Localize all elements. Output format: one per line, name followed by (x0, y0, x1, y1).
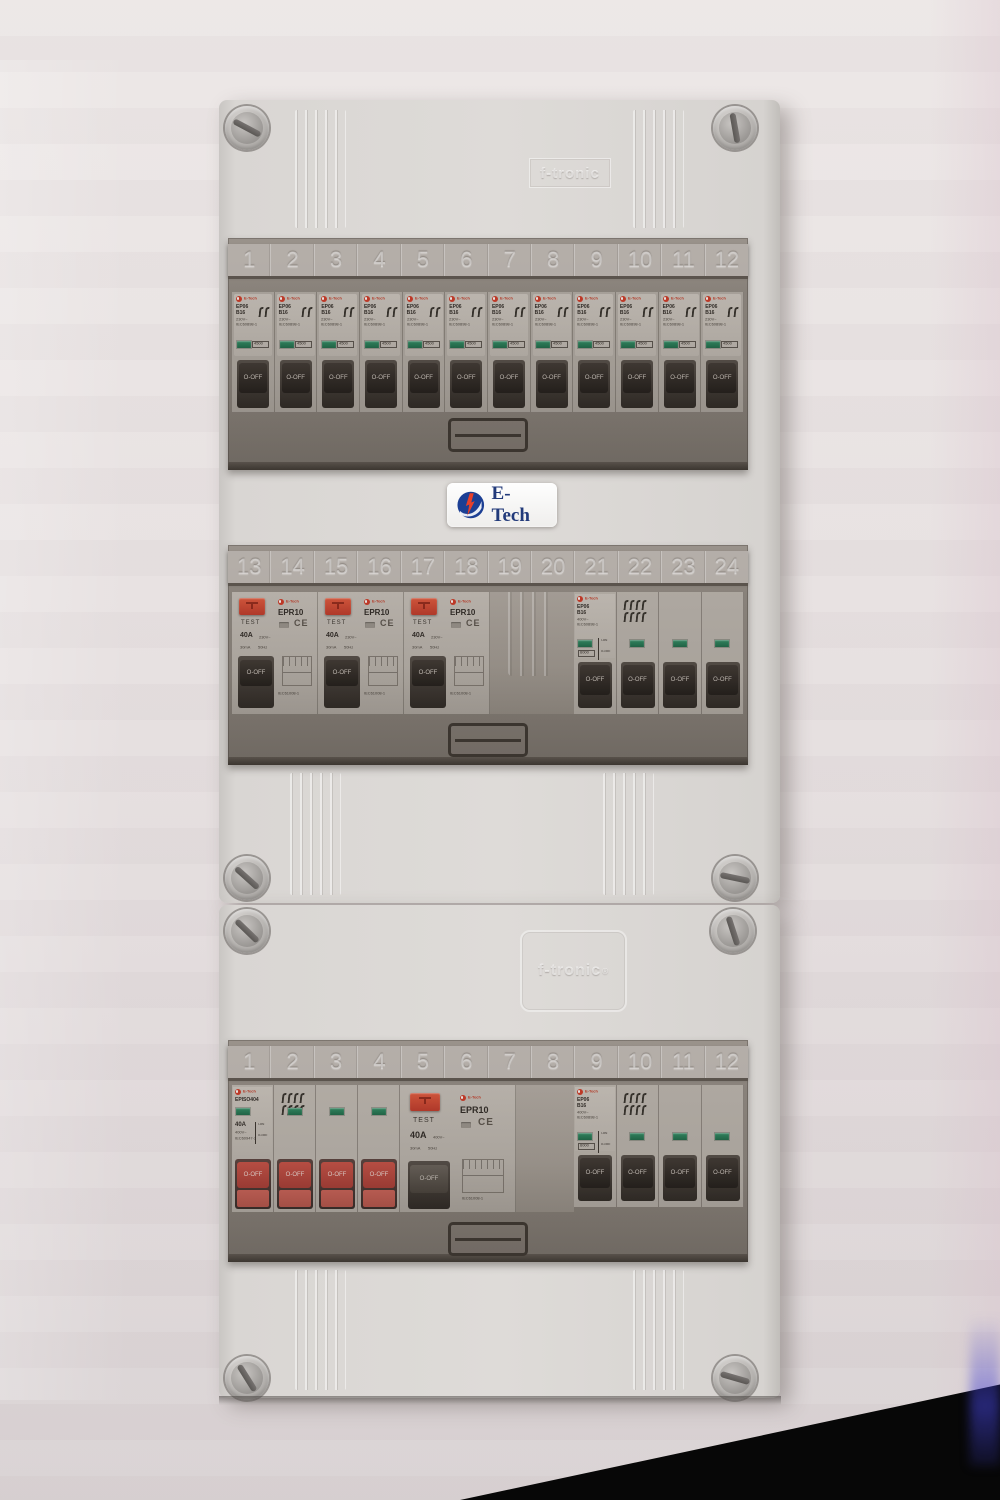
breaking-capacity-label: 6000 (580, 651, 589, 655)
brand-mark: E-Tech (364, 296, 392, 302)
curve-hook-icon (301, 307, 306, 317)
brand-mark: E-Tech (450, 599, 478, 605)
on-label: I-ON (258, 1123, 264, 1126)
wiring-diagram (462, 1159, 504, 1193)
curve-hook-icon (514, 307, 519, 317)
isolator-toggle[interactable]: O-OFF (363, 1162, 395, 1188)
breaking-capacity-box: 4500 (380, 341, 397, 348)
curve-hook-icon (563, 307, 568, 317)
brand-label: E-Tech (372, 297, 385, 301)
breaking-capacity-label: 4500 (254, 342, 263, 346)
rating-label: B16 (364, 311, 373, 316)
mcb-ep06-4p: E-TechEP06B16400V~IEC60898-16000I-ONO-OF… (574, 592, 744, 714)
standard-label: IEC60898-1 (449, 323, 470, 327)
sensitivity-label: 30mA (410, 1147, 420, 1151)
rcd-epr10: TESTE-TechEPR10CE40A230V~30mA50HzO-OFFIE… (404, 592, 490, 714)
standard-label: IEC60898-1 (577, 1116, 598, 1120)
breaking-capacity-box: 4500 (295, 341, 312, 348)
consumer-unit-lower: f-tronic® 123456789101112 E-TechEPISO404… (219, 905, 780, 1398)
curve-hook-icon (281, 1105, 286, 1115)
isolator-toggle[interactable]: O-OFF (279, 1162, 311, 1188)
standard-label: IEC60898-1 (577, 323, 598, 327)
breaking-capacity-label: 4500 (297, 342, 306, 346)
breaker-toggle[interactable]: O-OFF (282, 363, 310, 393)
test-t-icon (246, 602, 258, 610)
cover-latch[interactable] (448, 418, 528, 452)
slot-number: 3 (314, 244, 357, 276)
rcd-toggle[interactable]: O-OFF (326, 660, 358, 686)
ce-mark: CE (380, 619, 395, 628)
breaking-capacity-box: 4500 (337, 341, 354, 348)
breaking-capacity-box: 4500 (252, 341, 269, 348)
pole-4: O-OFF (702, 592, 745, 714)
cover-edge (228, 462, 748, 470)
mcb-ep06-1p: E-TechEP06B16230V~IEC60898-14500O-OFF (659, 292, 702, 412)
vent-ribs (633, 1270, 684, 1390)
status-indicator-window (578, 1133, 592, 1140)
curve-hook-icon (429, 307, 434, 317)
sensitivity-label: 30mA (326, 646, 336, 650)
status-indicator-window (673, 640, 687, 647)
breaker-toggle[interactable]: O-OFF (580, 1158, 610, 1188)
rail-shadow (228, 276, 748, 279)
test-t-icon (332, 602, 344, 610)
e-tech-logo-icon (460, 1095, 466, 1101)
mcb-label-area: E-TechEP06B16230V~IEC60898-14500 (362, 294, 400, 356)
slot-number: 12 (705, 1046, 748, 1078)
sensitivity-label: 30mA (412, 646, 422, 650)
voltage-label: 230V~ (577, 318, 589, 322)
brand-mark: E-Tech (620, 296, 648, 302)
brand-label: E-Tech (415, 297, 428, 301)
standard-label: IEC61008-1 (364, 692, 385, 696)
breaker-toggle[interactable]: O-OFF (452, 363, 480, 393)
slot-number: 6 (444, 244, 487, 276)
curve-hook-icon (636, 1093, 641, 1103)
status-indicator-window (706, 341, 720, 348)
on-label: I-ON (601, 639, 607, 642)
on-off-indicator: I-ONO-OFF (255, 1122, 271, 1144)
trip-curve-marks (472, 307, 482, 317)
brand-label: E-Tech (457, 297, 470, 301)
breaker-toggle[interactable]: O-OFF (239, 363, 267, 393)
mcb-ep06-1p: E-TechEP06B16230V~IEC60898-14500O-OFF (616, 292, 659, 412)
enclosure-top-panel: f-tronic® (219, 905, 780, 1040)
slot-number: 15 (314, 551, 357, 583)
e-tech-logo-icon (577, 296, 583, 302)
breaker-toggle[interactable]: O-OFF (623, 363, 651, 393)
curve-hook-icon (630, 1093, 635, 1103)
curve-hook-icon (557, 307, 562, 317)
rating-label: 40A (326, 632, 339, 639)
screw (225, 909, 269, 953)
rating-label: B16 (492, 311, 501, 316)
blanking-module (516, 1085, 574, 1212)
mcb-ep06-1p: E-TechEP06B16230V~IEC60898-14500O-OFF (317, 292, 360, 412)
brand-mark: E-Tech (535, 296, 563, 302)
breaker-toggle[interactable]: O-OFF (665, 665, 695, 695)
indicator-window (461, 1122, 471, 1128)
consumer-unit-upper: f-tronic 123456789101112 E-TechEP06B1623… (219, 100, 780, 903)
breaking-capacity-box: 6000 (578, 1143, 595, 1150)
rating-label: B16 (620, 311, 629, 316)
mcb-label-area: E-TechEP06B16230V~IEC60898-14500 (319, 294, 357, 356)
model-label: EPR10 (450, 609, 475, 617)
brand-label: E-Tech (329, 297, 342, 301)
pole-4: O-OFF (702, 1085, 745, 1207)
mcb-label-area: E-TechEP06B16230V~IEC60898-14500 (533, 294, 571, 356)
test-button[interactable] (410, 1093, 440, 1111)
status-indicator-window (664, 341, 678, 348)
status-indicator-window (450, 341, 464, 348)
curve-hook-icon (630, 612, 635, 622)
brand-mark: E-Tech (321, 296, 349, 302)
status-indicator-window (237, 341, 251, 348)
brand-mark: E-Tech (364, 599, 392, 605)
breaker-toggle[interactable]: O-OFF (580, 665, 610, 695)
pole-3: O-OFF (659, 592, 702, 714)
cover-latch[interactable] (448, 723, 528, 757)
rcd-epr10: TESTE-TechEPR10CE40A230V~30mA50HzO-OFFIE… (232, 592, 318, 714)
wiring-diagram (368, 656, 398, 686)
slot-number: 22 (618, 551, 661, 583)
mcb-label-area: E-TechEP06B16230V~IEC60898-14500 (703, 294, 741, 356)
breaker-row-window-1: 123456789101112 E-TechEP06B16230V~IEC608… (228, 238, 748, 470)
slot-number: 21 (574, 551, 617, 583)
curve-hook-icon (734, 307, 739, 317)
mcb-ep06-1p: E-TechEP06B16230V~IEC60898-14500O-OFF (445, 292, 488, 412)
isolator-toggle-foot (237, 1190, 269, 1207)
breaking-capacity-box: 4500 (636, 341, 653, 348)
brand-label: E-Tech (287, 297, 300, 301)
voltage-label: 230V~ (663, 318, 675, 322)
brand-mark: E-Tech (279, 296, 307, 302)
voltage-label: 230V~ (345, 636, 357, 640)
voltage-label: 230V~ (279, 318, 291, 322)
standard-label: IEC60898-1 (577, 623, 598, 627)
mcb-label-area: E-TechEP06B16230V~IEC60898-14500 (405, 294, 443, 356)
brand-mark: E-Tech (236, 296, 264, 302)
voltage-label: 400V~ (577, 618, 589, 622)
curve-hook-icon (606, 307, 611, 317)
trip-curve-marks (624, 1093, 650, 1115)
curve-hook-icon (281, 1093, 286, 1103)
mcb-label-area: E-TechEP06B16230V~IEC60898-14500 (661, 294, 699, 356)
slot-number: 8 (531, 244, 574, 276)
indicator-window (365, 622, 375, 628)
rating-label: 40A (240, 632, 253, 639)
breaker-toggle[interactable]: O-OFF (580, 363, 608, 393)
slot-number-strip: 131415161718192021222324 (228, 551, 748, 583)
slot-number: 17 (401, 551, 444, 583)
trip-curve-marks (387, 307, 397, 317)
status-indicator-window (715, 640, 729, 647)
breaker-toggle[interactable]: O-OFF (410, 363, 438, 393)
e-tech-logo-icon (620, 296, 626, 302)
e-tech-logo-icon (450, 599, 456, 605)
curve-hook-icon (264, 307, 269, 317)
wiring-diagram (282, 656, 312, 686)
status-indicator-window (280, 341, 294, 348)
rcd-toggle[interactable]: O-OFF (240, 660, 272, 686)
screw (713, 106, 757, 150)
voltage-label: 230V~ (492, 318, 504, 322)
curve-hook-icon (520, 307, 525, 317)
mcb-label-area: E-TechEP06B16230V~IEC60898-14500 (575, 294, 613, 356)
breaker-toggle[interactable]: O-OFF (538, 363, 566, 393)
mcb-ep06-4p: E-TechEP06B16400V~IEC60898-16000I-ONO-OF… (574, 1085, 744, 1207)
screw (225, 106, 269, 150)
standard-label: IEC60898-1 (705, 323, 726, 327)
off-label: O-OFF (601, 650, 610, 653)
voltage-label: 400V~ (433, 1136, 445, 1140)
isolator-toggle[interactable]: O-OFF (321, 1162, 353, 1188)
pole-1: E-TechEP06B16400V~IEC60898-16000I-ONO-OF… (574, 592, 617, 714)
breaking-capacity-label: 4500 (723, 342, 732, 346)
voltage-label: 230V~ (535, 318, 547, 322)
status-indicator-window (621, 341, 635, 348)
slot-number: 7 (488, 1046, 531, 1078)
curve-hook-icon (642, 600, 647, 610)
breaking-capacity-label: 4500 (595, 342, 604, 346)
curve-hook-icon (691, 307, 696, 317)
e-tech-logo-icon (321, 296, 327, 302)
off-label: O-OFF (258, 1134, 267, 1137)
background-glow (0, 60, 130, 1400)
brand-mark: E-Tech (577, 596, 605, 602)
breaking-capacity-box: 4500 (593, 341, 610, 348)
standard-label: IEC60898-1 (321, 323, 342, 327)
slot-number: 12 (705, 244, 748, 276)
voltage-label: 230V~ (620, 318, 632, 322)
rcd-epr10: TESTE-TechEPR10CE40A400V~30mA50HzO-OFFIE… (400, 1085, 516, 1212)
trip-curve-marks (259, 307, 269, 317)
rcd-toggle[interactable]: O-OFF (410, 1165, 448, 1193)
on-off-indicator: I-ONO-OFF (598, 1131, 614, 1153)
status-indicator-window (578, 341, 592, 348)
test-button[interactable] (325, 598, 351, 615)
vent-ribs (290, 773, 341, 895)
test-label: TEST (413, 620, 432, 626)
slot-number: 23 (661, 551, 704, 583)
rating-label: B16 (705, 311, 714, 316)
curve-hook-icon (624, 1105, 629, 1115)
curve-hook-icon (642, 1105, 647, 1115)
test-label: TEST (241, 620, 260, 626)
breaker-toggle[interactable]: O-OFF (495, 363, 523, 393)
vent-ribs (295, 110, 346, 228)
cast-shadow (219, 1396, 781, 1405)
mcb-label-area: E-TechEP06B16400V~IEC60898-16000I-ONO-OF… (575, 594, 615, 658)
slot-number: 9 (574, 1046, 617, 1078)
curve-hook-icon (630, 1105, 635, 1115)
breaking-capacity-label: 4500 (339, 342, 348, 346)
e-tech-logo-icon (407, 296, 413, 302)
breaking-capacity-label: 4500 (510, 342, 519, 346)
slot-number: 2 (270, 244, 313, 276)
breaker-toggle[interactable]: O-OFF (623, 665, 653, 695)
rating-label: B16 (535, 311, 544, 316)
breaker-toggle[interactable]: O-OFF (623, 1158, 653, 1188)
test-button[interactable] (239, 598, 265, 615)
status-indicator-window (365, 341, 379, 348)
curve-hook-icon (287, 1093, 292, 1103)
brand-mark: E-Tech (449, 296, 477, 302)
status-indicator-window (236, 1108, 250, 1115)
blanking-tab (508, 592, 556, 676)
test-t-icon (419, 1097, 431, 1105)
rating-label: 40A (235, 1122, 246, 1128)
voltage-label: 230V~ (705, 318, 717, 322)
enclosure-brand-emboss: f-tronic® (520, 930, 627, 1012)
slot-number: 9 (574, 244, 617, 276)
e-tech-logo-icon (364, 296, 370, 302)
pole-2: O-OFF (617, 592, 660, 714)
model-label: EPR10 (364, 609, 389, 617)
standard-label: IEC60898-1 (620, 323, 641, 327)
curve-hook-icon (648, 307, 653, 317)
product-photo: f-tronic 123456789101112 E-TechEP06B1623… (0, 0, 1000, 1500)
curve-hook-icon (307, 307, 312, 317)
rating-label: B16 (663, 311, 672, 316)
wiring-diagram (454, 656, 484, 686)
status-indicator-window (493, 341, 507, 348)
breaker-row-window-2: 131415161718192021222324 TESTE-TechEPR10… (228, 545, 748, 765)
slot-number: 8 (531, 1046, 574, 1078)
slot-number: 24 (705, 551, 748, 583)
e-tech-logo-icon (235, 1089, 241, 1095)
indicator-window (279, 622, 289, 628)
rating-label: B16 (577, 1104, 586, 1109)
model-label: EPR10 (460, 1106, 489, 1115)
brand-label: E-Tech (372, 600, 385, 604)
brand-label: E-Tech (468, 1096, 481, 1100)
model-label: EPISO404 (235, 1098, 259, 1103)
slot-number: 5 (401, 1046, 444, 1078)
isolator-toggle[interactable]: O-OFF (237, 1162, 269, 1188)
breaker-toggle[interactable]: O-OFF (666, 363, 694, 393)
slot-number: 13 (228, 551, 270, 583)
curve-hook-icon (344, 307, 349, 317)
pole-4: O-OFF (358, 1085, 400, 1212)
e-tech-logo-icon (492, 296, 498, 302)
slot-number: 20 (531, 551, 574, 583)
cover-latch[interactable] (448, 1222, 528, 1256)
mcb-ep06-1p: E-TechEP06B16230V~IEC60898-14500O-OFF (360, 292, 403, 412)
test-label: TEST (327, 620, 346, 626)
test-button[interactable] (411, 598, 437, 615)
slot-number: 2 (270, 1046, 313, 1078)
standard-label: IEC60898-1 (279, 323, 300, 327)
slot-number: 1 (228, 1046, 270, 1078)
curve-hook-icon (624, 1093, 629, 1103)
blanking-module (490, 592, 574, 714)
breaker-toggle[interactable]: O-OFF (708, 1158, 738, 1188)
slot-number: 5 (401, 244, 444, 276)
breaker-toggle[interactable]: O-OFF (708, 363, 736, 393)
curve-hook-icon (685, 307, 690, 317)
slot-number: 6 (444, 1046, 487, 1078)
standard-label: IEC61008-1 (450, 692, 471, 696)
trip-curve-marks (430, 307, 440, 317)
rcd-epr10: TESTE-TechEPR10CE40A230V~30mA50HzO-OFFIE… (318, 592, 404, 714)
mcb-ep06-1p: E-TechEP06B16230V~IEC60898-14500O-OFF (232, 292, 275, 412)
screw (711, 909, 755, 953)
trip-curve-marks (558, 307, 568, 317)
curve-hook-icon (299, 1093, 304, 1103)
mcb-ep06-1p: E-TechEP06B16230V~IEC60898-14500O-OFF (275, 292, 318, 412)
e-tech-badge-logo-icon (456, 490, 486, 520)
off-label: O-OFF (601, 1143, 610, 1146)
breaker-toggle[interactable]: O-OFF (665, 1158, 695, 1188)
main-switch-episo404: E-TechEPISO40440A400V~IEC60947-3I-ONO-OF… (232, 1085, 400, 1212)
status-indicator-window (408, 341, 422, 348)
e-tech-logo-icon (705, 296, 711, 302)
rcd-toggle[interactable]: O-OFF (412, 660, 444, 686)
test-t-icon (418, 602, 430, 610)
slot-number: 14 (270, 551, 313, 583)
voltage-label: 230V~ (236, 318, 248, 322)
frequency-label: 50Hz (258, 646, 267, 650)
trip-curve-marks (686, 307, 696, 317)
e-tech-logo-icon (278, 599, 284, 605)
trip-curve-marks (515, 307, 525, 317)
rating-label: B16 (236, 311, 245, 316)
e-tech-logo-icon (535, 296, 541, 302)
slot-number: 1 (228, 244, 270, 276)
trip-curve-marks (624, 600, 650, 622)
on-label: I-ON (601, 1132, 607, 1135)
curve-hook-icon (350, 307, 355, 317)
emboss-text: f-tronic (538, 962, 601, 980)
enclosure-bottom-panel (219, 1262, 780, 1398)
status-indicator-window (372, 1108, 386, 1115)
ce-mark: CE (478, 1118, 494, 1128)
brand-label: E-Tech (458, 600, 471, 604)
brand-label: E-Tech (671, 297, 684, 301)
badge-brand-text: E-Tech (492, 483, 548, 527)
trip-curve-marks (643, 307, 653, 317)
e-tech-logo-icon (663, 296, 669, 302)
e-tech-logo-icon (236, 296, 242, 302)
status-indicator-window (630, 640, 644, 647)
breaker-toggle[interactable]: O-OFF (708, 665, 738, 695)
rating-label: B16 (449, 311, 458, 316)
standard-label: IEC60898-1 (492, 323, 513, 327)
e-tech-logo-icon (449, 296, 455, 302)
slot-number: 16 (357, 551, 400, 583)
slot-number: 10 (618, 1046, 661, 1078)
voltage-label: 230V~ (321, 318, 333, 322)
badge-strip: E-Tech (219, 470, 780, 545)
breaker-toggle[interactable]: O-OFF (324, 363, 352, 393)
curve-hook-icon (478, 307, 483, 317)
slot-number-strip: 123456789101112 (228, 244, 748, 276)
mcb-ep06-1p: E-TechEP06B16230V~IEC60898-14500O-OFF (488, 292, 531, 412)
trip-curve-marks (344, 307, 354, 317)
e-tech-badge: E-Tech (447, 483, 557, 527)
enclosure-top-panel: f-tronic (219, 100, 780, 238)
breaker-toggle[interactable]: O-OFF (367, 363, 395, 393)
rail-shadow (228, 1078, 748, 1081)
standard-label: IEC61008-1 (462, 1197, 483, 1201)
isolator-toggle-foot (279, 1190, 311, 1207)
slot-number: 4 (357, 1046, 400, 1078)
curve-hook-icon (435, 307, 440, 317)
mcb-label-area: E-TechEP06B16230V~IEC60898-14500 (447, 294, 485, 356)
curve-hook-icon (642, 307, 647, 317)
frequency-label: 50Hz (430, 646, 439, 650)
